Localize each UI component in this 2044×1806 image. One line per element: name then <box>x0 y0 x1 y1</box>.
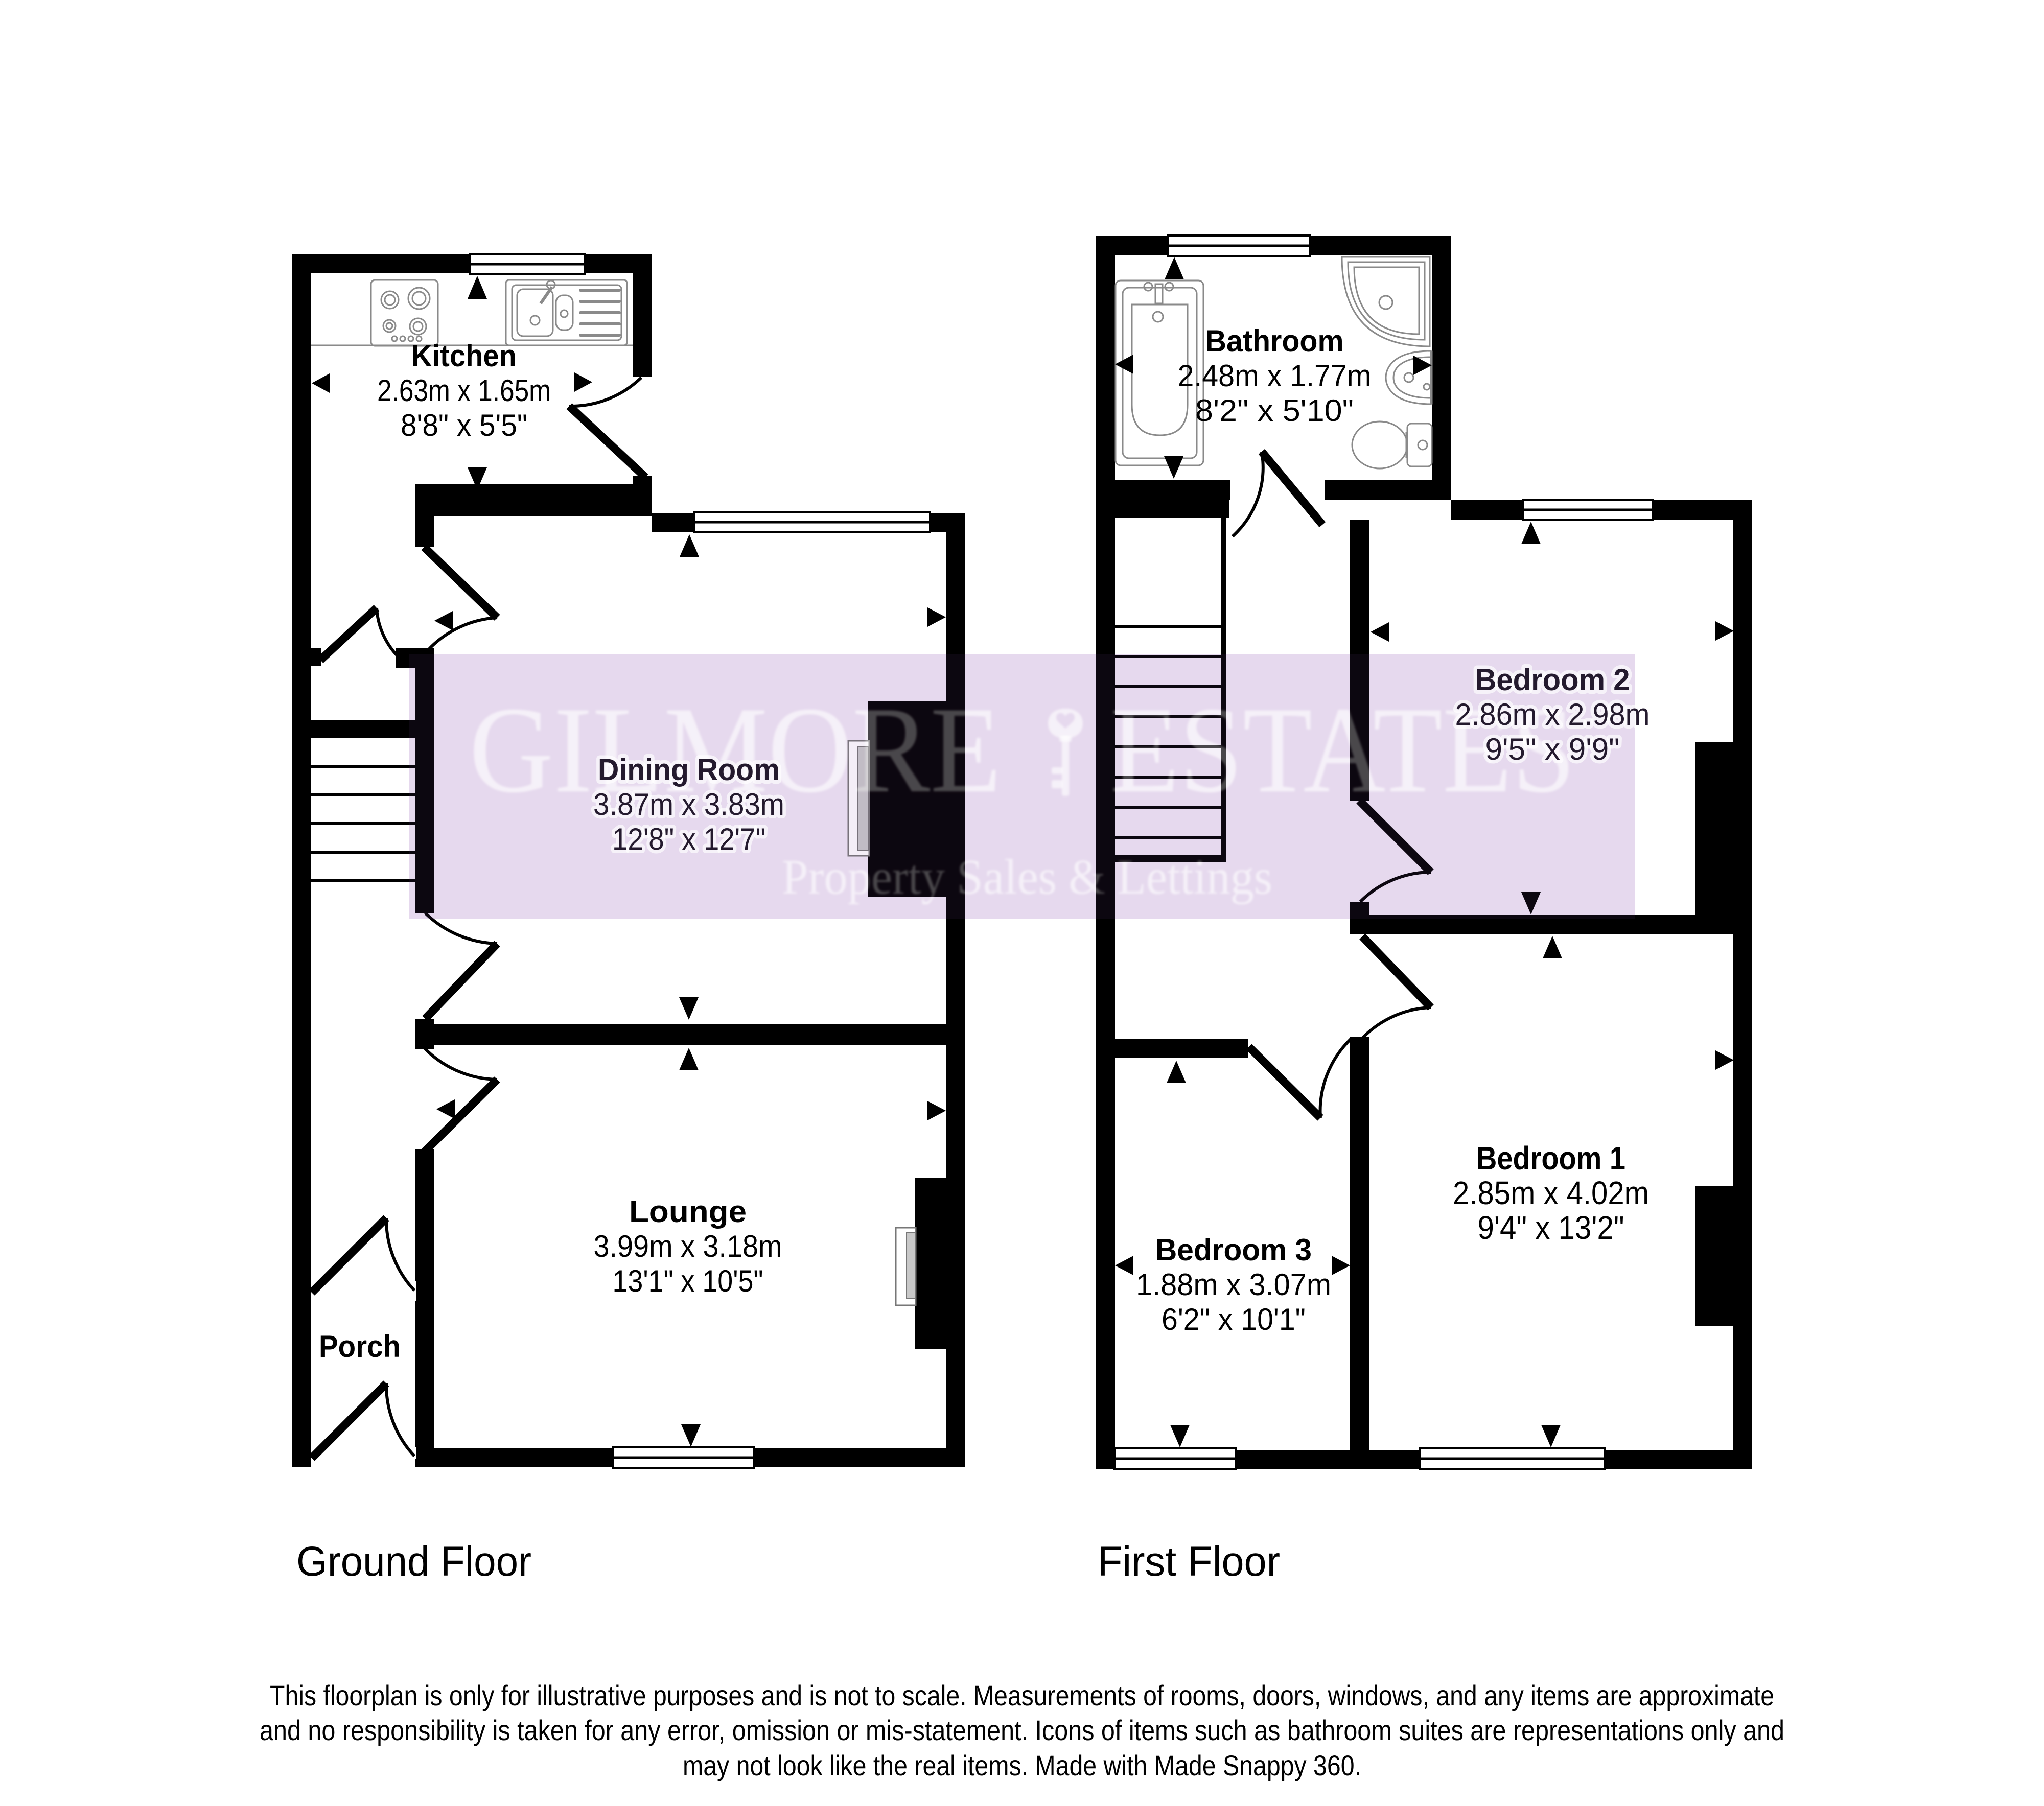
svg-text:13'1" x 10'5": 13'1" x 10'5" <box>613 1264 763 1298</box>
svg-text:2.85m x 4.02m: 2.85m x 4.02m <box>1453 1175 1649 1211</box>
svg-text:9'5" x 9'9": 9'5" x 9'9" <box>1485 732 1620 766</box>
svg-text:Porch: Porch <box>319 1329 401 1364</box>
svg-text:Ground Floor: Ground Floor <box>296 1538 531 1585</box>
svg-text:2.63m x 1.65m: 2.63m x 1.65m <box>377 373 551 408</box>
svg-text:This floorplan is only for ill: This floorplan is only for illustrative … <box>270 1679 1774 1711</box>
svg-text:Dining Room: Dining Room <box>598 753 780 787</box>
svg-text:Bedroom 2: Bedroom 2 <box>1475 663 1630 697</box>
svg-text:Bedroom 3: Bedroom 3 <box>1155 1233 1312 1267</box>
svg-text:may not look like the real ite: may not look like the real items. Made w… <box>683 1749 1361 1781</box>
svg-text:2.48m x 1.77m: 2.48m x 1.77m <box>1178 359 1372 393</box>
svg-text:Lounge: Lounge <box>629 1194 747 1229</box>
svg-text:Bedroom 1: Bedroom 1 <box>1476 1140 1625 1177</box>
svg-text:12'8" x 12'7": 12'8" x 12'7" <box>612 822 765 856</box>
svg-text:6'2" x 10'1": 6'2" x 10'1" <box>1162 1302 1306 1336</box>
svg-text:8'2" x 5'10": 8'2" x 5'10" <box>1195 393 1354 428</box>
svg-text:First Floor: First Floor <box>1098 1538 1280 1585</box>
svg-text:3.87m x 3.83m: 3.87m x 3.83m <box>593 787 784 822</box>
svg-text:9'4" x 13'2": 9'4" x 13'2" <box>1478 1209 1624 1246</box>
svg-text:2.86m x 2.98m: 2.86m x 2.98m <box>1455 697 1650 732</box>
svg-text:Bathroom: Bathroom <box>1205 324 1344 358</box>
svg-text:1.88m x 3.07m: 1.88m x 3.07m <box>1136 1268 1331 1302</box>
svg-text:Kitchen: Kitchen <box>411 339 517 373</box>
svg-text:8'8" x 5'5": 8'8" x 5'5" <box>401 408 527 442</box>
svg-text:3.99m x 3.18m: 3.99m x 3.18m <box>594 1229 782 1263</box>
svg-text:and no responsibility is taken: and no responsibility is taken for any e… <box>260 1714 1784 1746</box>
